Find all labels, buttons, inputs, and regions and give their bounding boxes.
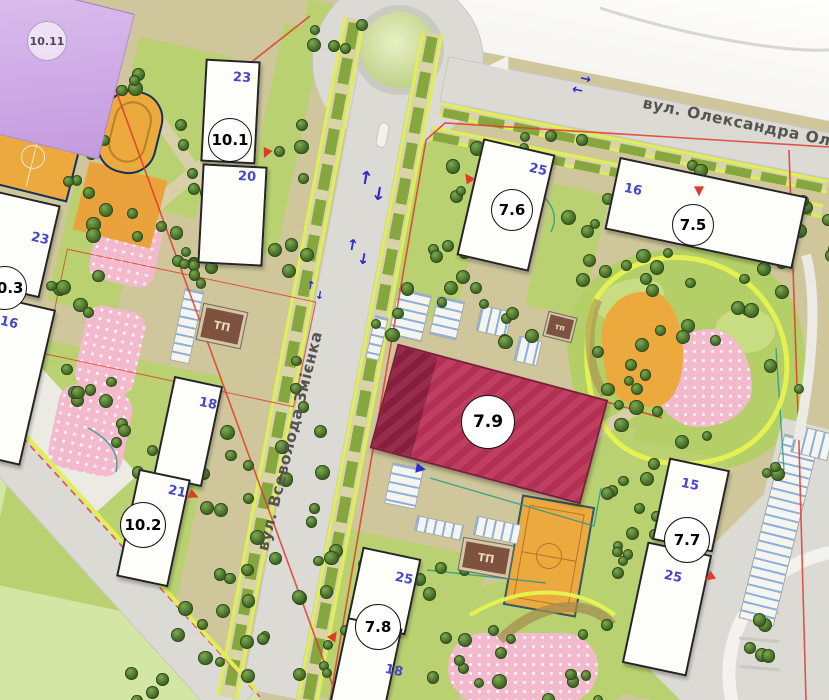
plot-number: 10.11 [30,35,65,48]
parking-lot [414,515,464,541]
traffic-arrow-icon: ↑ [305,279,316,291]
tree-icon [744,642,756,654]
tree-icon [242,594,256,608]
tree-icon [220,425,235,440]
tree-icon [188,183,200,195]
tree-icon [520,132,530,142]
tree-icon [775,285,789,299]
tree-icon [324,551,338,565]
tree-icon [285,238,298,251]
tree-icon [131,695,142,700]
plot-label-7-9[interactable]: 7.9 [461,395,515,449]
plot-number: 10.2 [124,516,161,534]
tree-icon [525,329,539,343]
tree-icon [576,273,590,287]
tree-icon [576,134,587,145]
tree-icon [565,669,577,681]
building-10-1-sec-20 [197,163,267,266]
plot-label-7-7[interactable]: 7.7 [664,517,710,563]
tree-icon [675,435,689,449]
tree-icon [178,601,193,616]
tree-icon [442,240,454,252]
tree-icon [542,693,555,700]
track-oval [104,97,156,166]
tree-icon [498,335,513,350]
tree-icon [257,633,269,645]
site-plan-map: ТП тп ТП 23 20 23 16 18 21 25 16 15 25 2… [0,0,829,700]
tree-icon [762,649,775,662]
tree-icon [446,159,460,173]
tree-icon [753,613,767,627]
tree-icon [648,458,660,470]
tree-icon [655,325,666,336]
tree-icon [225,450,236,461]
tree-icon [506,307,519,320]
tree-icon [385,328,400,343]
tree-icon [83,307,94,318]
tree-icon [215,657,225,667]
tree-icon [241,669,255,683]
tree-icon [618,556,628,566]
plot-label-10-2[interactable]: 10.2 [120,502,166,548]
tree-icon [626,527,639,540]
tree-icon [618,476,628,486]
tree-icon [46,281,57,292]
tree-icon [401,282,414,295]
tree-icon [371,319,381,329]
tree-icon [293,668,306,681]
tree-icon [640,273,652,285]
tree-icon [99,394,113,408]
tree-icon [116,85,127,96]
tree-icon [601,619,613,631]
tree-icon [822,214,829,227]
plot-label-7-5[interactable]: 7.5 [672,204,714,246]
tree-icon [430,250,443,263]
tree-icon [685,278,695,288]
tree-icon [340,43,351,54]
tree-icon [216,604,231,619]
tree-icon [306,516,318,528]
tree-icon [320,585,333,598]
tree-icon [640,369,651,380]
plot-number: 10.1 [211,131,248,149]
tree-icon [392,308,403,319]
tree-icon [578,629,588,639]
tree-icon [492,674,507,689]
tree-icon [581,670,592,681]
tree-icon [170,226,183,239]
tree-icon [710,335,721,346]
tree-icon [495,647,507,659]
plot-label-10-1[interactable]: 10.1 [208,118,252,162]
tree-icon [197,619,208,630]
plot-number: 7.8 [365,618,392,636]
tree-icon [268,243,283,258]
tree-icon [125,667,138,680]
tree-icon [214,503,228,517]
tree-icon [132,231,143,242]
tp-label: тп [554,321,566,332]
tree-icon [456,186,466,196]
tree-icon [423,587,436,600]
tree-icon [292,590,306,604]
plot-number: 7.5 [680,216,707,234]
traffic-arrow-icon: ↓ [314,289,325,301]
tree-icon [309,503,320,514]
plot-label-7-8[interactable]: 7.8 [355,604,401,650]
tree-icon [85,384,97,396]
tree-icon [590,219,600,229]
tree-icon [156,221,167,232]
tree-icon [456,270,470,284]
tree-icon [146,686,159,699]
tree-icon [118,424,131,437]
tree-icon [298,173,309,184]
tree-icon [200,501,215,516]
tree-icon [593,695,604,700]
tree-icon [636,249,650,263]
tree-icon [243,460,254,471]
tree-icon [356,19,368,31]
plot-label-10-11[interactable]: 10.11 [27,21,67,61]
tree-icon [592,346,604,358]
tree-icon [240,635,254,649]
tree-icon [702,431,712,441]
tree-icon [479,299,489,309]
tree-icon [764,359,778,373]
tree-icon [296,119,308,131]
tree-icon [127,208,138,219]
tree-icon [583,254,597,268]
tp-label: ТП [477,550,496,566]
plot-label-7-6[interactable]: 7.6 [491,189,533,231]
traffic-arrow-icon: ▶ [415,461,427,476]
tree-icon [56,280,71,295]
tree-icon [614,418,628,432]
floor-count-label: 23 [233,70,252,86]
tree-icon [294,140,308,154]
tree-icon [650,260,665,275]
tree-icon [440,632,452,644]
tree-icon [629,400,644,415]
tree-icon [178,139,189,150]
tree-icon [599,265,612,278]
tree-icon [189,269,200,280]
tree-icon [86,228,101,243]
tree-icon [470,282,483,295]
tree-icon [427,671,439,683]
floor-count-label: 20 [238,169,257,185]
plot-number: 7.9 [473,412,503,432]
tree-icon [224,573,235,584]
tree-icon [744,303,759,318]
traffic-arrow-icon: ↓ [356,251,371,268]
tp-label: ТП [212,318,231,334]
tree-icon [71,386,84,399]
tree-icon [171,628,185,642]
tree-icon [83,187,95,199]
tree-icon [181,247,191,257]
field-center-circle [18,142,47,171]
tree-icon [561,210,576,225]
plot-number: 7.7 [674,531,701,549]
tree-icon [762,468,772,478]
tree-icon [488,625,499,636]
traffic-arrow-icon: ↓ [370,185,388,205]
tree-icon [106,377,116,387]
tree-icon [545,130,557,142]
plot-number: 10.3 [0,279,24,297]
tree-icon [156,673,169,686]
tree-icon [652,406,663,417]
entrance-marker-icon: ▲ [694,185,704,198]
tree-icon [770,462,780,472]
tree-icon [111,437,122,448]
tree-icon [307,38,321,52]
plot-number: 7.6 [499,201,526,219]
tree-icon [63,176,74,187]
